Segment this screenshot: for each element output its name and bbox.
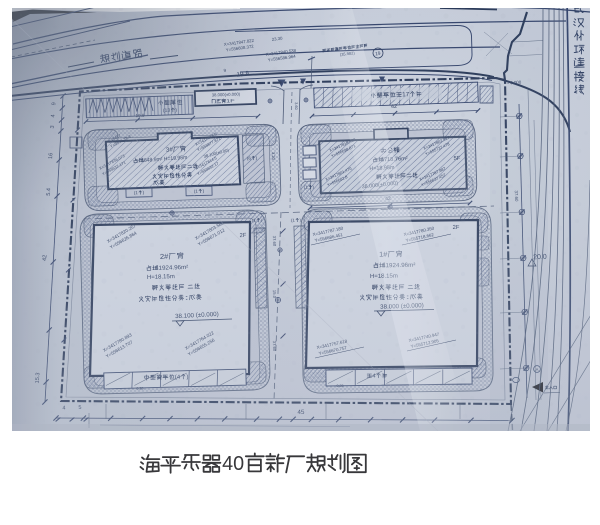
svg-text:40: 40: [222, 453, 244, 475]
